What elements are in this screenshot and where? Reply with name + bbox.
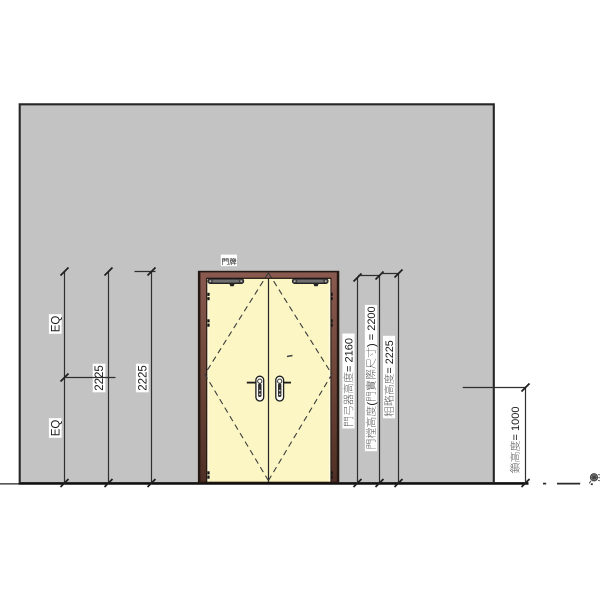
svg-text:EQ: EQ [50,420,62,437]
svg-text:(: ( [366,402,378,406]
svg-text:= 2225: = 2225 [384,340,396,373]
svg-text:) = 2200: ) = 2200 [366,306,378,347]
svg-text:= 2160: = 2160 [343,338,355,372]
svg-text:= 1000: = 1000 [510,407,522,441]
svg-text:EQ: EQ [50,316,62,333]
svg-text:2225: 2225 [137,365,149,391]
